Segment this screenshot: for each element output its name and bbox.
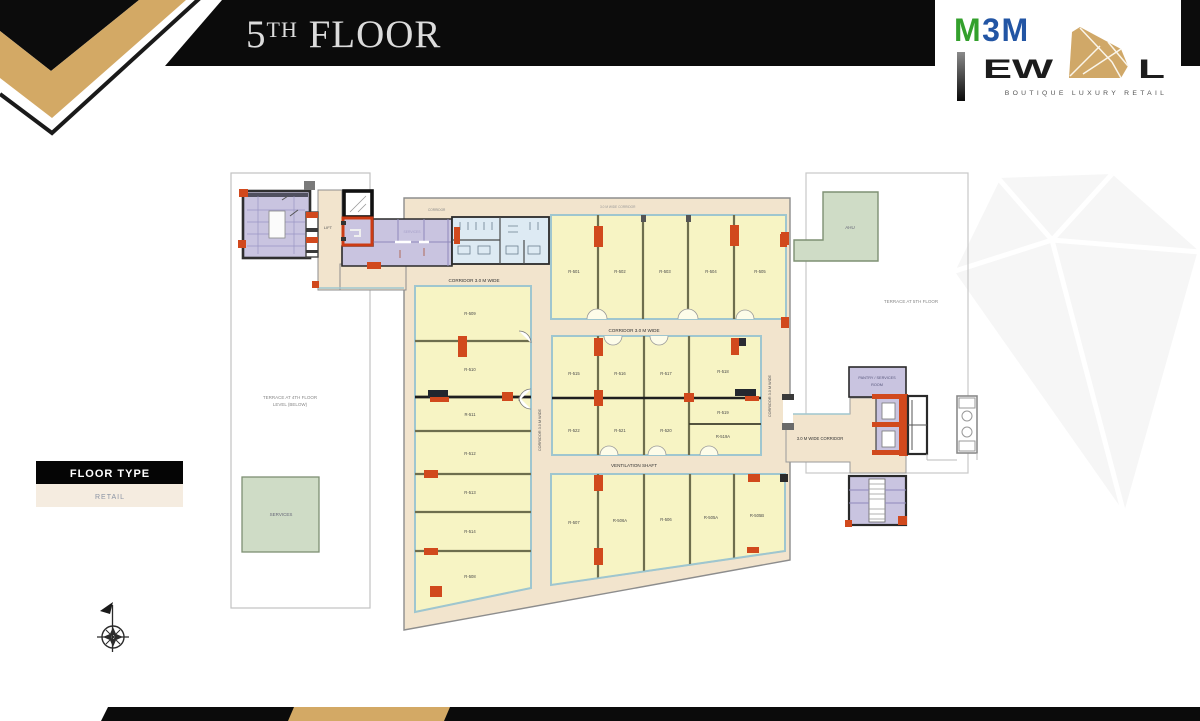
svg-text:R-519: R-519 [717, 410, 729, 415]
svg-text:R-508: R-508 [464, 574, 476, 579]
svg-text:SERVICES: SERVICES [270, 512, 293, 517]
svg-text:R-503: R-503 [659, 269, 671, 274]
svg-text:R-505: R-505 [754, 269, 766, 274]
svg-text:L: L [1138, 54, 1165, 84]
svg-text:R-507: R-507 [568, 520, 580, 525]
svg-text:BOUTIQUE LUXURY RETAIL: BOUTIQUE LUXURY RETAIL [1005, 90, 1168, 97]
svg-text:R-506A: R-506A [613, 518, 627, 523]
svg-text:VENTILATION SHAFT: VENTILATION SHAFT [611, 463, 657, 468]
svg-text:R-518: R-518 [717, 369, 729, 374]
svg-text:LEVEL (BELOW): LEVEL (BELOW) [273, 402, 308, 407]
svg-text:3.0 M WIDE CORRIDOR: 3.0 M WIDE CORRIDOR [600, 205, 636, 209]
svg-text:R-504: R-504 [705, 269, 717, 274]
svg-text:PANTRY / SERVICES: PANTRY / SERVICES [858, 376, 896, 380]
svg-text:AHU: AHU [845, 225, 855, 230]
svg-text:FLOOR TYPE: FLOOR TYPE [70, 468, 150, 480]
svg-text:R-517: R-517 [660, 371, 672, 376]
svg-text:R-513: R-513 [464, 490, 476, 495]
svg-text:3.0 M WIDE CORRIDOR: 3.0 M WIDE CORRIDOR [797, 436, 844, 441]
svg-text:EW: EW [983, 54, 1054, 84]
svg-text:R-515: R-515 [568, 371, 580, 376]
svg-text:TERRACE AT 4TH FLOOR: TERRACE AT 4TH FLOOR [263, 395, 318, 400]
svg-text:R-505A: R-505A [704, 515, 718, 520]
svg-text:R-502: R-502 [614, 269, 626, 274]
svg-text:M3M: M3M [954, 12, 1030, 48]
svg-text:R-505B: R-505B [750, 513, 764, 518]
svg-text:LIFT: LIFT [324, 225, 333, 230]
svg-text:SERVICES: SERVICES [403, 230, 421, 234]
svg-text:R-520: R-520 [660, 428, 672, 433]
svg-text:R-501: R-501 [568, 269, 580, 274]
svg-text:CORRIDOR 3.0 M WIDE: CORRIDOR 3.0 M WIDE [448, 278, 499, 283]
svg-text:R-516: R-516 [614, 371, 626, 376]
svg-text:R-521: R-521 [614, 428, 626, 433]
svg-text:CORRIDOR 3.0 M WIDE: CORRIDOR 3.0 M WIDE [608, 328, 659, 333]
svg-text:R-519A: R-519A [716, 434, 730, 439]
svg-text:CORRIDOR 3.0 M WIDE: CORRIDOR 3.0 M WIDE [538, 408, 542, 451]
svg-text:R-510: R-510 [464, 367, 476, 372]
svg-text:R-522: R-522 [568, 428, 580, 433]
svg-text:R-511: R-511 [464, 412, 476, 417]
svg-text:RETAIL: RETAIL [95, 494, 125, 501]
svg-text:R-509: R-509 [464, 311, 476, 316]
svg-text:CORRIDOR: CORRIDOR [428, 208, 446, 212]
svg-text:CORRIDOR 3.0 M WIDE: CORRIDOR 3.0 M WIDE [768, 374, 772, 417]
svg-text:R-506: R-506 [660, 517, 672, 522]
svg-text:R-514: R-514 [464, 529, 476, 534]
svg-text:ROOM: ROOM [871, 383, 883, 387]
svg-text:TERRACE AT 5TH FLOOR: TERRACE AT 5TH FLOOR [884, 299, 939, 304]
svg-text:R-512: R-512 [464, 451, 476, 456]
